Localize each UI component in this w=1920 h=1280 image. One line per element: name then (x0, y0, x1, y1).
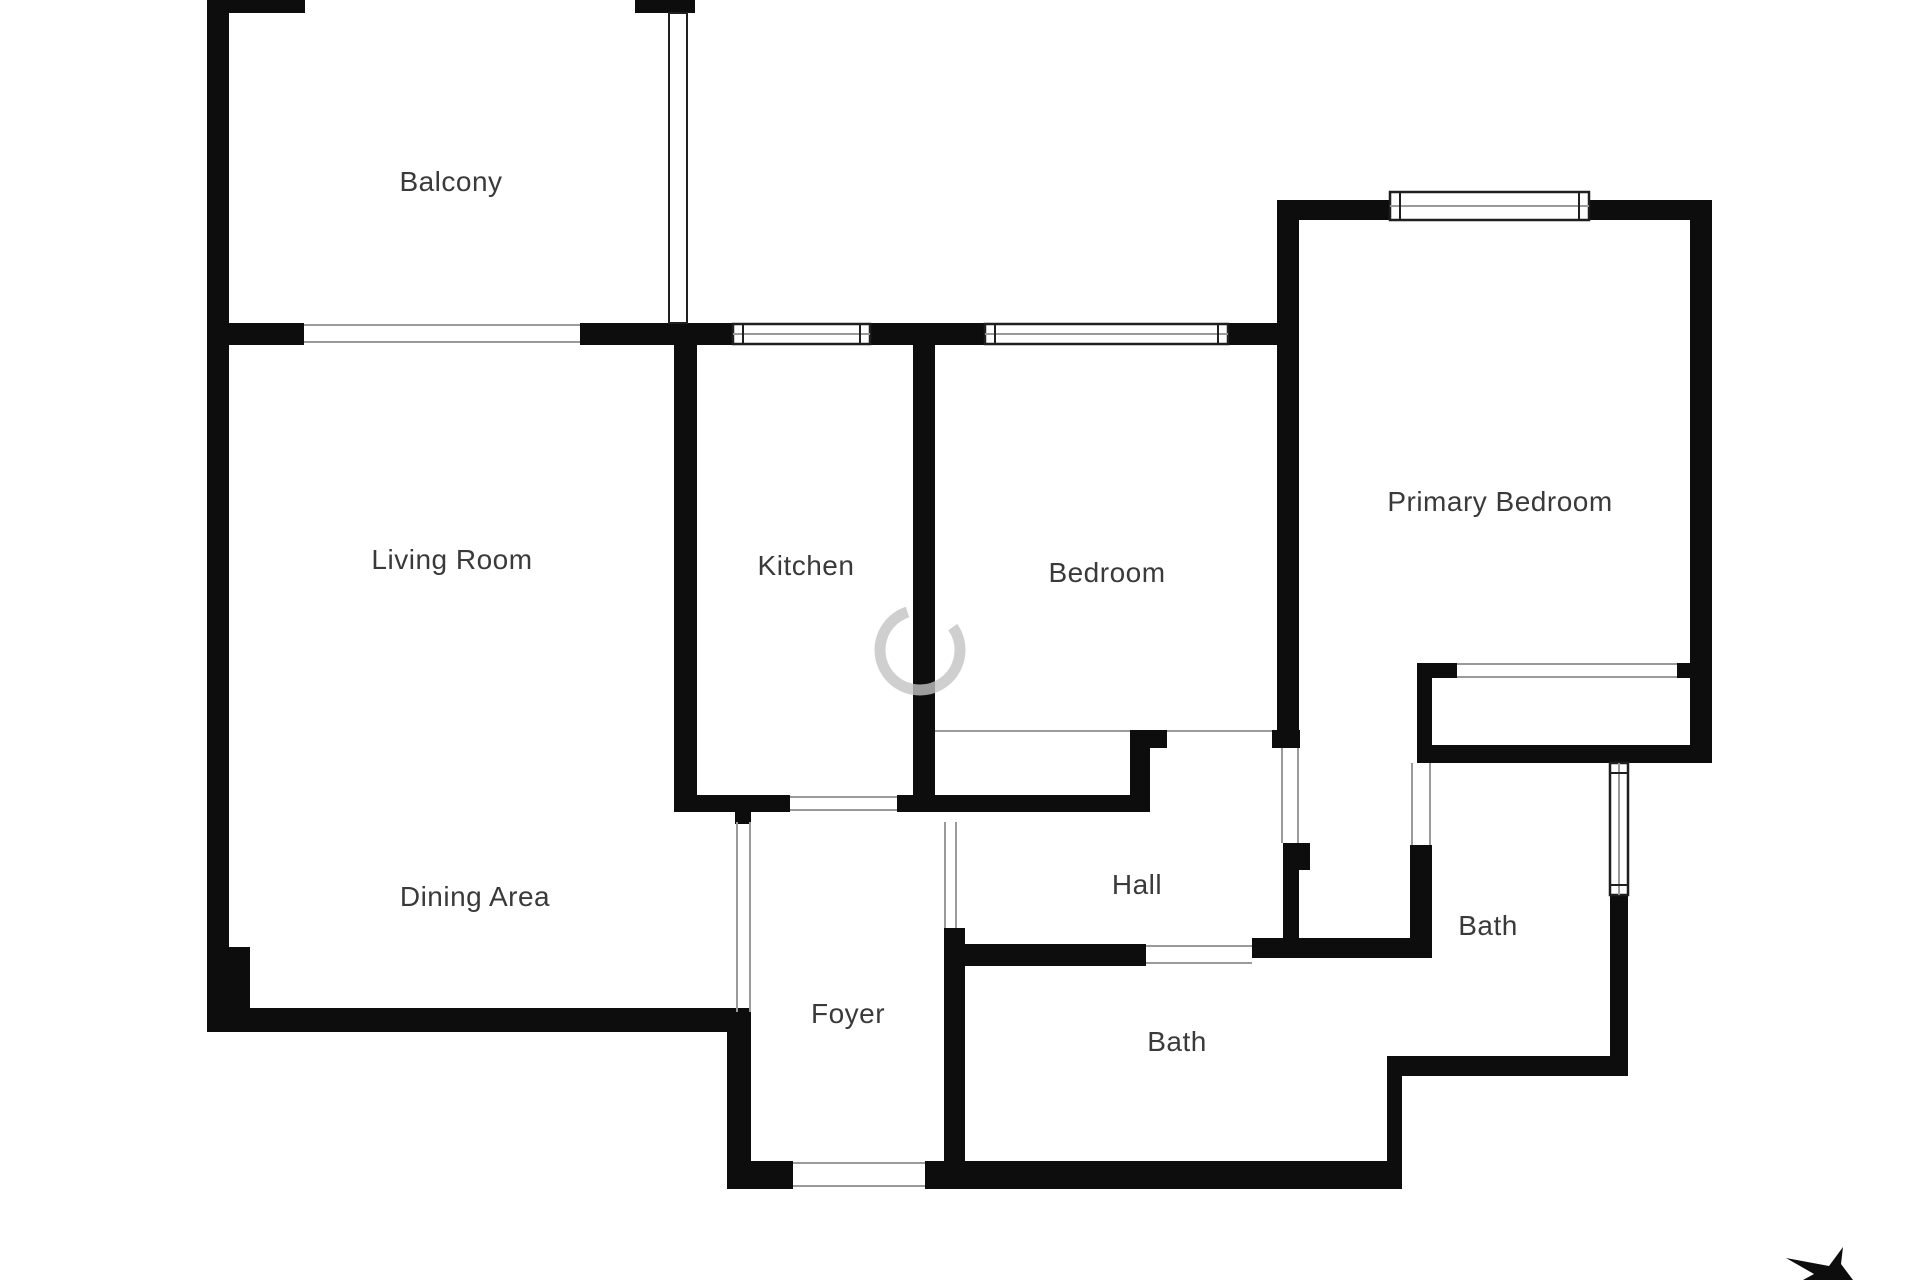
wall-segment (1417, 663, 1432, 763)
wall-segment (944, 928, 965, 1189)
wall-segment (1277, 200, 1299, 730)
wall-segment (1252, 938, 1432, 958)
wall-segment (207, 1008, 751, 1032)
wall-segment (1677, 663, 1697, 678)
room-label-balcony: Balcony (399, 166, 502, 198)
wall-segment (1610, 895, 1628, 1076)
wall-segment (727, 1012, 751, 1189)
wall-segment (635, 0, 695, 13)
wall-segment (897, 795, 1150, 812)
wall-segment (1387, 1056, 1628, 1076)
wall-segment (925, 1161, 1402, 1189)
wall-segment (913, 345, 935, 810)
wall-segment (674, 345, 697, 810)
room-label-hall: Hall (1112, 869, 1162, 901)
wall-segment (1130, 730, 1167, 748)
wall-segment (1272, 730, 1300, 748)
wall-segment (1432, 745, 1712, 763)
wall-segment (207, 0, 305, 13)
wall-segment (1690, 200, 1712, 763)
wall-segment (1298, 843, 1310, 870)
wall-segment (207, 323, 304, 345)
wall-segment (870, 323, 985, 345)
compass-arrow-icon (1786, 1247, 1853, 1280)
wall-segment (580, 323, 733, 345)
room-label-living-room: Living Room (371, 544, 532, 576)
wall-segment (207, 0, 229, 1032)
wall-segment (1277, 200, 1390, 220)
wall-segment (674, 795, 790, 812)
room-label-primary-bedroom: Primary Bedroom (1387, 486, 1612, 518)
room-label-dining-area: Dining Area (400, 881, 550, 913)
room-label-bath-right: Bath (1458, 910, 1518, 942)
room-label-bath-center: Bath (1147, 1026, 1207, 1058)
floor-plan-drawing (0, 0, 1920, 1280)
room-label-kitchen: Kitchen (758, 550, 855, 582)
wall-segment (1130, 748, 1150, 795)
floor-plan-canvas: BalconyLiving RoomKitchenBedroomPrimary … (0, 0, 1920, 1280)
room-label-foyer: Foyer (811, 998, 885, 1030)
glass-wall (669, 13, 687, 323)
room-label-bedroom: Bedroom (1048, 557, 1165, 589)
wall-segment (955, 944, 1146, 966)
